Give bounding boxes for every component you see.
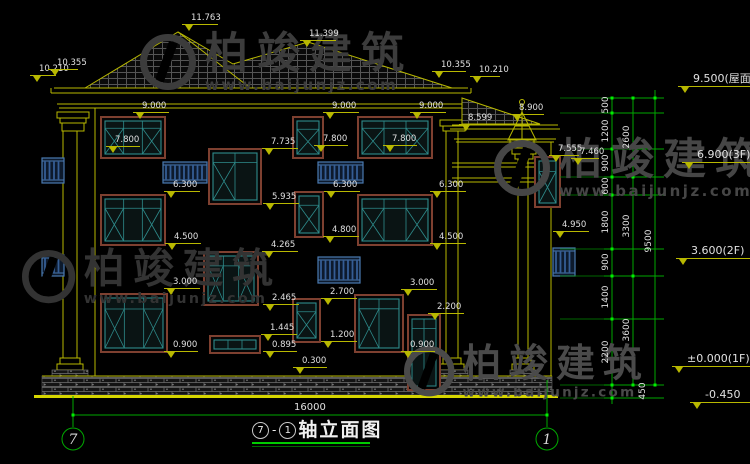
dimension-label: 3600 [622,319,632,342]
watermark-logo-icon [140,34,196,90]
elevation-marker: 5.935 [263,193,299,210]
elevation-marker: 2.465 [263,294,299,311]
elevation-marker: 9.000 [410,102,446,119]
elevation-marker: ±0.000(1F) [672,353,750,373]
window [358,195,432,245]
title-axis-end-bubble: 1 [279,422,296,439]
balcony-railing [553,248,575,276]
dimension-label: 2600 [622,126,632,149]
window [295,192,323,237]
total-width-dimension: 16000 [294,402,326,413]
elevation-marker: 8.599 [459,114,495,131]
watermark-url: www.baijunjz.com [559,182,750,200]
grip-dot [546,414,549,417]
grip-dot [654,97,657,100]
dimension-label: 1200 [601,120,611,143]
grip-dot [72,414,75,417]
title-text: 轴立面图 [298,420,382,440]
grip-dot [632,97,635,100]
cad-elevation-screenshot: 柏竣建筑www.baijunjz.com柏竣建筑www.baijunjz.com… [0,0,750,464]
elevation-marker: 9.000 [323,102,359,119]
title-underline [252,442,370,444]
elevation-marker: 8.900 [510,104,544,121]
elevation-marker: 3.600(2F) [676,245,750,265]
elevation-marker: 2.700 [321,288,357,305]
watermark: 柏竣建筑www.baijunjz.com [140,34,413,94]
elevation-marker: 6.300 [430,181,466,198]
elevation-marker: 10.355 [432,61,471,78]
title-dash: - [272,423,276,437]
elevation-marker: 0.900 [401,341,435,358]
watermark: 柏竣建筑www.baijunjz.com [22,250,281,307]
elevation-marker: 7.800 [106,136,140,153]
window [210,336,260,353]
elevation-marker: 10.210 [470,66,509,83]
axis-bubble-7: 7 [69,432,78,448]
elevation-marker: 4.500 [165,233,201,250]
balcony-railing [42,158,64,183]
grip-dot [611,275,614,278]
grip-dot [632,275,635,278]
elevation-marker: 0.895 [263,341,297,358]
watermark-logo-icon [22,250,75,303]
grip-dot [611,248,614,251]
dimension-label: 500 [601,96,611,113]
elevation-marker: 0.300 [293,357,327,374]
balcony-railing [318,257,360,283]
watermark: 柏竣建筑www.baijunjz.com [404,346,650,400]
elevation-marker: 4.500 [430,233,466,250]
watermark-url: www.baijunjz.com [205,76,413,94]
window [209,149,261,204]
dimension-label: 450 [638,382,648,399]
elevation-marker: 7.460 [571,148,604,165]
elevation-marker: 11.763 [182,14,221,31]
window [101,195,165,245]
elevation-marker: 4.265 [262,241,298,258]
drawing-title: 7 - 1 轴立面图 [252,420,382,440]
window [355,295,403,352]
axis-bubble-1: 1 [543,432,552,448]
elevation-marker: 11.399 [300,30,339,47]
dimension-label: 9500 [644,230,654,253]
title-axis-start-bubble: 7 [252,422,269,439]
watermark-url: www.baijunjz.com [463,384,650,400]
dimension-label: 900 [601,253,611,270]
dimension-label: 3300 [622,215,632,238]
dimension-label: 600 [601,177,611,194]
elevation-marker: 3.000 [164,278,200,295]
dimension-label: 1400 [601,286,611,309]
elevation-marker: 1.200 [321,331,357,348]
elevation-marker: 7.735 [262,138,298,155]
watermark-logo-icon [494,140,550,196]
elevation-marker: -0.450 [690,389,750,409]
elevation-marker: 6.300 [324,181,360,198]
elevation-marker: 6.900(3F) [682,149,750,169]
elevation-marker: 0.900 [164,341,198,358]
dimension-label: 2200 [601,341,611,364]
title-underline-thin [252,446,370,447]
elevation-marker: 4.950 [553,221,589,238]
dimension-label: 900 [601,154,611,171]
elevation-marker: 6.300 [164,181,200,198]
grip-dot [654,384,657,387]
dimension-label: 1800 [601,211,611,234]
elevation-marker: 9.500(屋面) [678,73,750,93]
elevation-marker: 3.000 [401,279,437,296]
elevation-marker: 9.000 [133,102,169,119]
elevation-marker: 1.445 [261,324,297,341]
elevation-marker: 7.800 [314,135,348,152]
elevation-marker: 10.355 [48,59,87,76]
elevation-marker: 4.800 [323,226,359,243]
elevation-marker: 2.200 [428,303,464,320]
grip-dot [611,318,614,321]
elevation-marker: 7.800 [383,135,417,152]
watermark-text: 柏竣建筑 [463,346,650,382]
